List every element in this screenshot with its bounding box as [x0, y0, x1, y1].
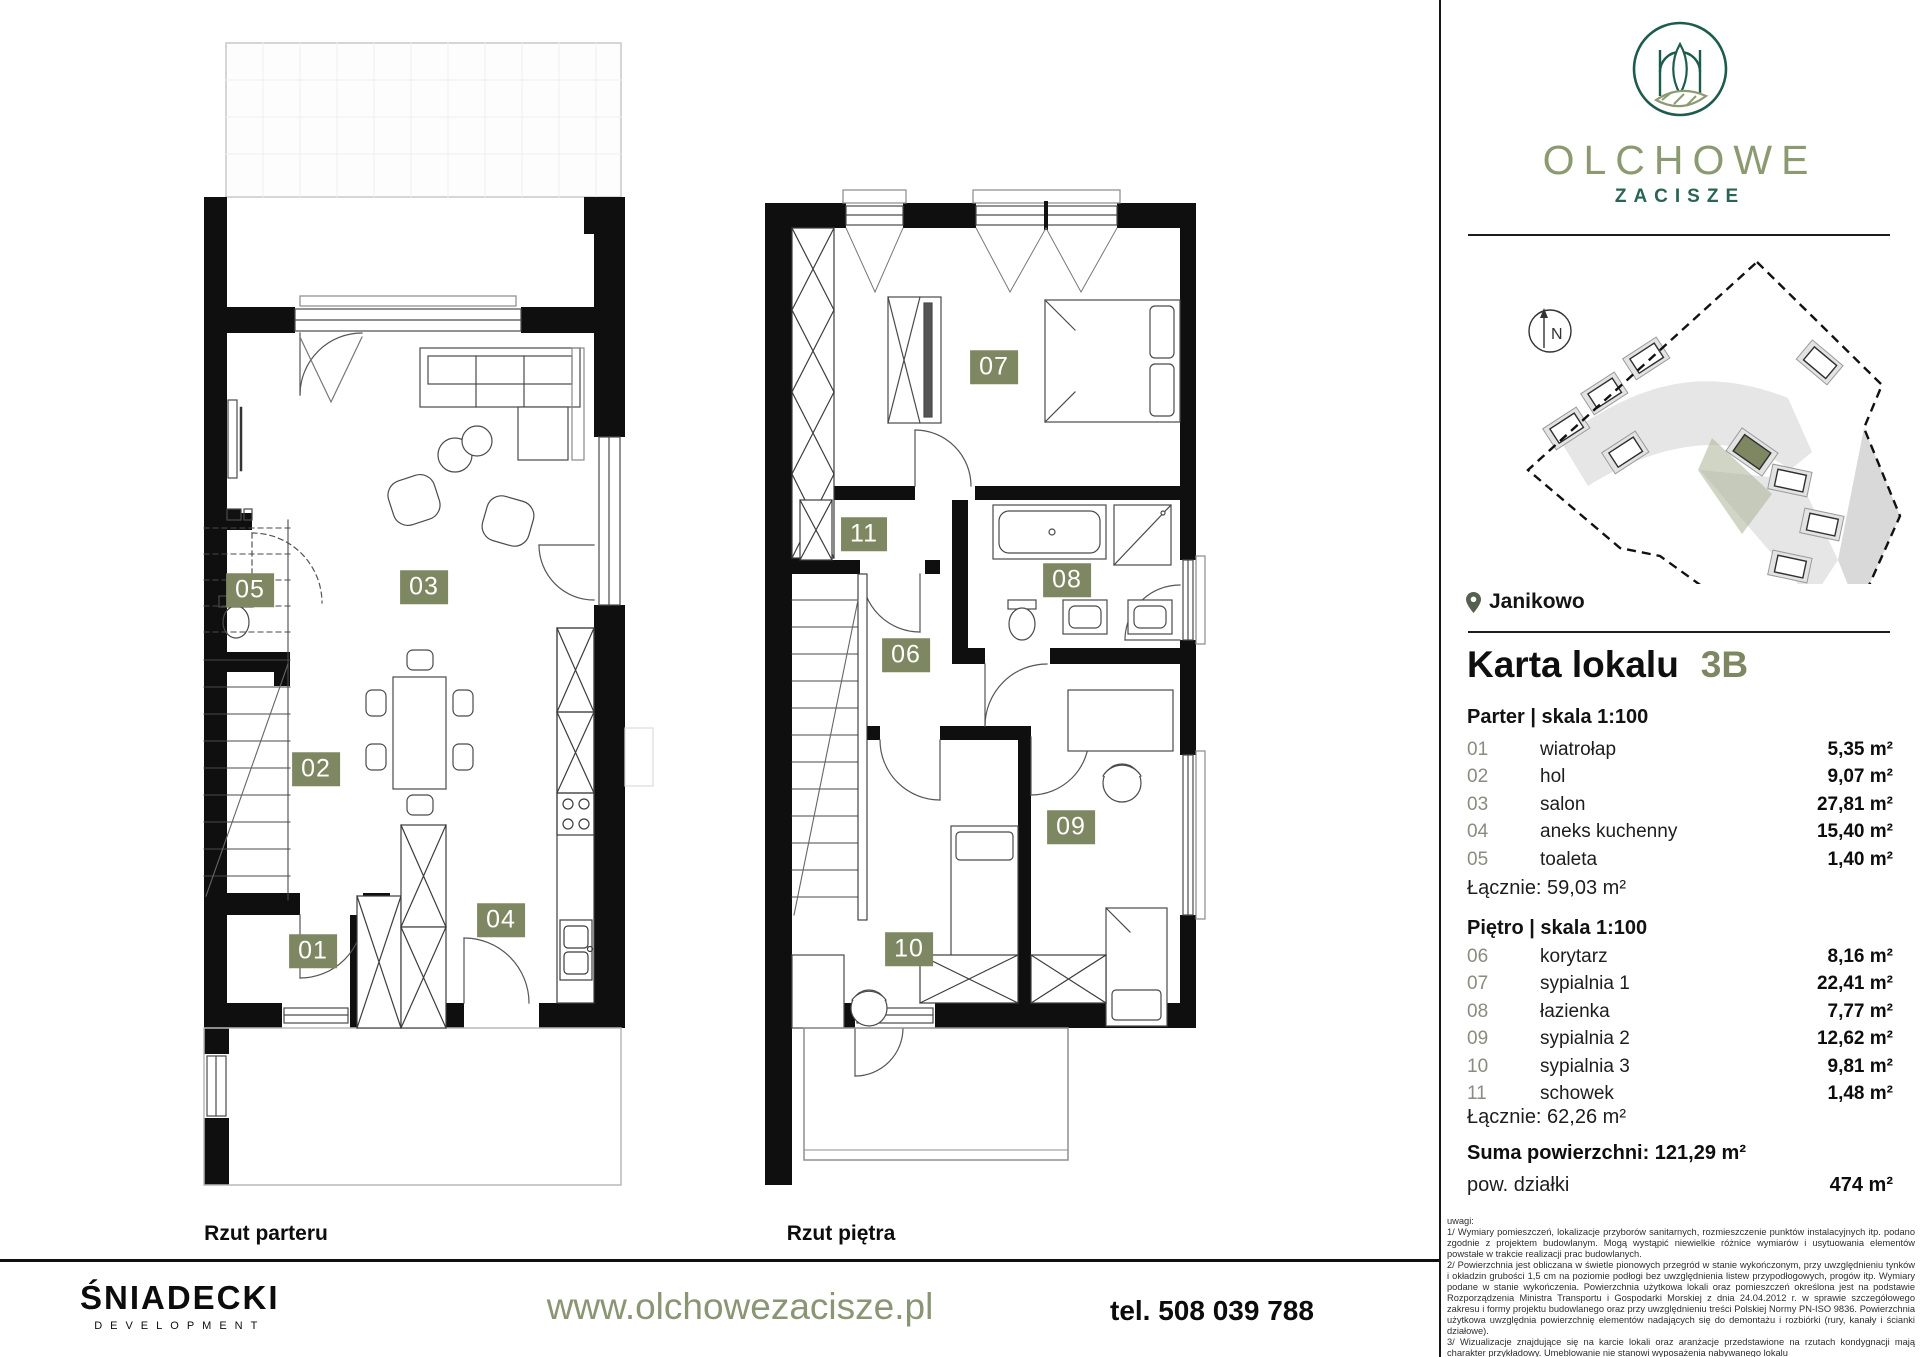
pietro-room-table: 06 korytarz 8,16 m² 07 sypialnia 1 22,41… — [1467, 943, 1893, 1108]
room-label-02: 02 — [292, 752, 340, 786]
room-name: hol — [1540, 766, 1828, 788]
room-name: łazienka — [1540, 1001, 1828, 1023]
room-label-06: 06 — [882, 638, 930, 672]
pietro-window-swings — [846, 228, 1117, 292]
notes-title: uwagi: — [1447, 1216, 1915, 1227]
room-label-05: 05 — [226, 573, 274, 607]
note-item-1: 1/ Wymiary pomieszczeń, lokalizacje przy… — [1447, 1227, 1915, 1260]
room-name: korytarz — [1540, 946, 1828, 968]
room-number: 04 — [1467, 821, 1540, 843]
room-row: 09 sypialnia 2 12,62 m² — [1467, 1026, 1893, 1054]
olchowe-logo-icon — [1630, 16, 1730, 128]
room-name: sypialnia 1 — [1540, 973, 1817, 995]
total-area: Suma powierzchni: 121,29 m² — [1467, 1142, 1746, 1165]
room-label-08: 08 — [1043, 563, 1091, 597]
room-area: 8,16 m² — [1828, 946, 1893, 968]
room-row: 11 schowek 1,48 m² — [1467, 1081, 1893, 1109]
room-row: 01 wiatrołap 5,35 m² — [1467, 736, 1893, 764]
site-plan-map: N — [1450, 248, 1915, 584]
room-row: 08 łazienka 7,77 m² — [1467, 998, 1893, 1026]
unit-id: 3B — [1701, 644, 1748, 685]
room-area: 9,81 m² — [1828, 1056, 1893, 1078]
plot-area-label: pow. działki — [1467, 1174, 1569, 1197]
room-row: 02 hol 9,07 m² — [1467, 764, 1893, 792]
divider-under-logo — [1468, 234, 1890, 236]
phone-number: tel. 508 039 788 — [1110, 1295, 1314, 1327]
room-row: 05 toaleta 1,40 m² — [1467, 846, 1893, 874]
parter-total: Łącznie: 59,03 m² — [1467, 877, 1626, 900]
parter-sofa — [228, 348, 584, 550]
room-area: 1,40 m² — [1828, 849, 1893, 871]
location-city: Janikowo — [1489, 590, 1585, 614]
parter-porch — [204, 1028, 621, 1185]
room-row: 10 sypialnia 3 9,81 m² — [1467, 1053, 1893, 1081]
room-area: 27,81 m² — [1817, 794, 1893, 816]
room-label-09: 09 — [1047, 810, 1095, 844]
note-item-2: 2/ Powierzchnia jest obliczana w świetle… — [1447, 1260, 1915, 1337]
developer-logo: ŚNIADECKI DEVELOPMENT — [80, 1279, 280, 1332]
room-number: 02 — [1467, 766, 1540, 788]
room-name: wiatrołap — [1540, 739, 1828, 761]
room-number: 11 — [1467, 1083, 1540, 1105]
pietro-stairs — [792, 574, 867, 920]
parter-heading: Parter | skala 1:100 — [1467, 706, 1648, 729]
room-area: 15,40 m² — [1817, 821, 1893, 843]
room-name: toaleta — [1540, 849, 1828, 871]
svg-text:N: N — [1551, 326, 1563, 343]
plot-area-row: pow. działki 474 m² — [1467, 1174, 1893, 1197]
room-row: 06 korytarz 8,16 m² — [1467, 943, 1893, 971]
legal-notes: uwagi: 1/ Wymiary pomieszczeń, lokalizac… — [1447, 1216, 1915, 1357]
brand-subname: ZACISZE — [1440, 186, 1920, 208]
room-number: 01 — [1467, 739, 1540, 761]
card-title: Karta lokalu3B — [1467, 644, 1748, 686]
room-name: salon — [1540, 794, 1817, 816]
pietro-total: Łącznie: 62,26 m² — [1467, 1106, 1626, 1129]
unit-card-page: 05 03 02 01 04 07 11 08 06 09 10 Rzut pa… — [0, 0, 1920, 1357]
room-label-11: 11 — [841, 517, 887, 551]
room-area: 5,35 m² — [1828, 739, 1893, 761]
parter-room-table: 01 wiatrołap 5,35 m² 02 hol 9,07 m² 03 s… — [1467, 736, 1893, 874]
parter-closets — [357, 825, 446, 1028]
room-name: sypialnia 3 — [1540, 1056, 1828, 1078]
room-number: 10 — [1467, 1056, 1540, 1078]
map-pin-icon — [1466, 592, 1481, 613]
room-name: schowek — [1540, 1083, 1828, 1105]
room-name: sypialnia 2 — [1540, 1028, 1817, 1050]
room-area: 12,62 m² — [1817, 1028, 1893, 1050]
pietro-bottom-closets — [920, 955, 1106, 1003]
room-row: 04 aneks kuchenny 15,40 m² — [1467, 819, 1893, 847]
divider-above-title — [1468, 631, 1890, 633]
room-number: 06 — [1467, 946, 1540, 968]
room-number: 09 — [1467, 1028, 1540, 1050]
room-number: 03 — [1467, 794, 1540, 816]
room-label-03: 03 — [400, 570, 448, 604]
parter-terrace — [226, 43, 621, 197]
pietro-wardrobe — [792, 228, 834, 560]
pietro-balcony — [804, 1028, 1068, 1160]
room-label-04: 04 — [477, 903, 525, 937]
website-url: www.olchowezacisze.pl — [547, 1286, 934, 1328]
floor-plans-drawing — [0, 0, 1440, 1255]
pietro-caption: Rzut piętra — [787, 1222, 896, 1246]
room-area: 1,48 m² — [1828, 1083, 1893, 1105]
developer-name: ŚNIADECKI — [80, 1279, 280, 1317]
room-number: 07 — [1467, 973, 1540, 995]
note-item-3: 3/ Wizualizacje znajdujące się na karcie… — [1447, 1337, 1915, 1357]
room-label-07: 07 — [970, 350, 1018, 384]
room-number: 05 — [1467, 849, 1540, 871]
parter-dining — [366, 650, 473, 815]
developer-subtitle: DEVELOPMENT — [80, 1320, 280, 1332]
room-area: 7,77 m² — [1828, 1001, 1893, 1023]
room-label-10: 10 — [885, 932, 933, 966]
room-name: aneks kuchenny — [1540, 821, 1817, 843]
room-area: 9,07 m² — [1828, 766, 1893, 788]
room-row: 03 salon 27,81 m² — [1467, 791, 1893, 819]
card-title-label: Karta lokalu — [1467, 644, 1679, 685]
room-number: 08 — [1467, 1001, 1540, 1023]
location-row: Janikowo — [1466, 590, 1585, 614]
footer-bar: ŚNIADECKI DEVELOPMENT www.olchowezacisze… — [0, 1259, 1439, 1357]
room-area: 22,41 m² — [1817, 973, 1893, 995]
brand-name: OLCHOWE — [1440, 137, 1920, 184]
parter-caption: Rzut parteru — [204, 1222, 328, 1246]
compass-icon: N — [1529, 308, 1571, 352]
plot-area-value: 474 m² — [1830, 1174, 1893, 1197]
pietro-bed1 — [888, 297, 1180, 423]
pietro-heading: Piętro | skala 1:100 — [1467, 917, 1647, 940]
room-label-01: 01 — [289, 934, 337, 968]
room-row: 07 sypialnia 1 22,41 m² — [1467, 971, 1893, 999]
